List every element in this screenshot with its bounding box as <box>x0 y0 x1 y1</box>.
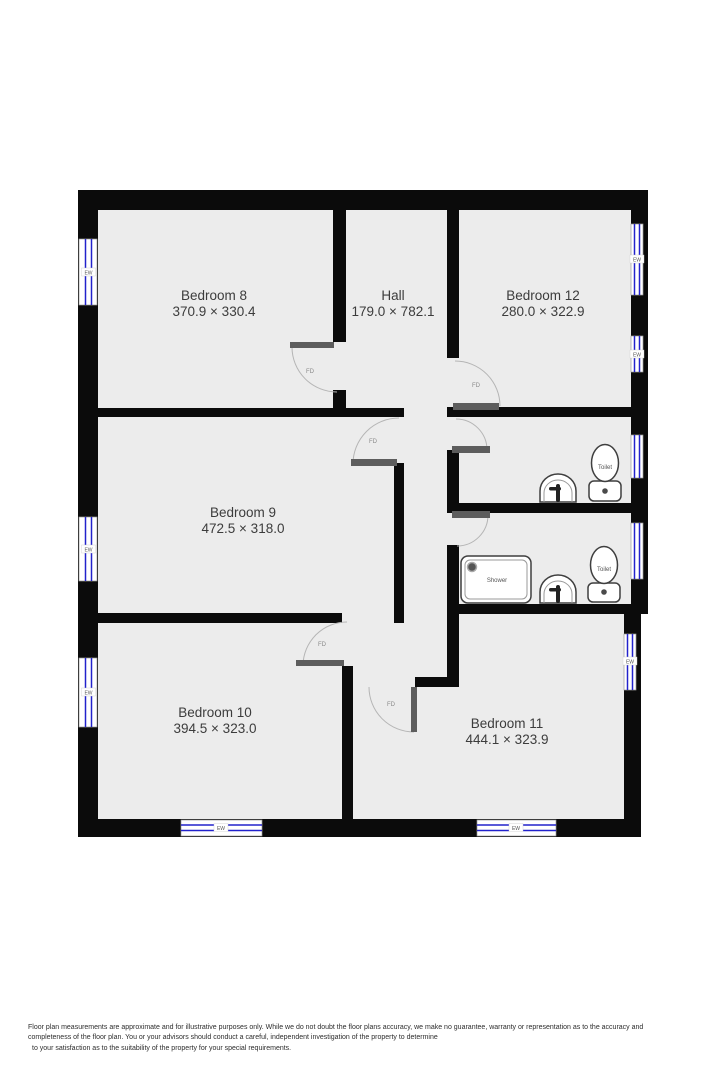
sink-wc1 <box>540 474 576 502</box>
window-bedroom11-bottom: EW <box>477 820 556 836</box>
toilet-flush-button <box>601 589 607 595</box>
door-leaf <box>452 446 490 453</box>
wall-wc2-left <box>447 545 459 614</box>
ew-text: EW <box>84 548 92 554</box>
disclaimer: Floor plan measurements are approximate … <box>28 1023 688 1054</box>
room-dimensions: 472.5 × 318.0 <box>202 521 285 536</box>
shower-drain <box>468 563 477 572</box>
sink-tap-handle <box>549 487 561 491</box>
room-dimensions: 179.0 × 782.1 <box>352 304 435 319</box>
door-leaf <box>411 687 417 732</box>
wall-hall-bedroom12-divider <box>447 210 459 358</box>
ew-text: EW <box>84 691 92 697</box>
wall-bedroom9-top <box>96 408 404 417</box>
room-label-bedroom11: Bedroom 11 444.1 × 323.9 <box>466 716 549 747</box>
window-bedroom11-right: EW <box>623 634 637 690</box>
toilet-flush-button <box>602 488 608 494</box>
ew-text: EW <box>84 271 92 277</box>
disclaimer-line-2: completeness of the floor plan. You or y… <box>28 1033 688 1043</box>
door-leaf <box>351 459 397 466</box>
toilet-wc2: Toilet <box>588 547 620 603</box>
ew-text: EW <box>512 826 520 832</box>
wall-shower-room-bottom <box>447 604 648 614</box>
sink-wc2 <box>540 575 576 603</box>
room-name: Bedroom 11 <box>471 716 544 731</box>
floor-plan-page: EW EW EW EW EW <box>0 0 720 1080</box>
wall-bedroom9-bottom <box>96 613 342 623</box>
window-frame <box>631 523 643 579</box>
door-leaf <box>453 403 499 410</box>
window-wc2-right <box>631 523 643 579</box>
floor-plan-drawing: EW EW EW EW EW <box>0 0 720 1080</box>
fire-door-text: FD <box>318 642 327 648</box>
sink-tap <box>556 484 560 502</box>
sink-tap <box>556 585 560 603</box>
door-leaf <box>290 342 334 348</box>
toilet-bowl <box>592 445 619 482</box>
room-name: Bedroom 9 <box>210 505 276 520</box>
room-dimensions: 394.5 × 323.0 <box>174 721 257 736</box>
wall-bedroom10-bedroom11-divider <box>342 666 353 819</box>
window-bedroom9-left: EW <box>79 517 97 581</box>
room-label-bedroom10: Bedroom 10 394.5 × 323.0 <box>174 705 257 736</box>
ew-text: EW <box>633 258 641 264</box>
disclaimer-line-1: Floor plan measurements are approximate … <box>28 1023 688 1033</box>
shower-text: Shower <box>487 578 507 584</box>
room-name: Bedroom 12 <box>506 288 580 303</box>
fire-door-text: FD <box>306 369 315 375</box>
window-bedroom10-left: EW <box>79 658 97 727</box>
room-label-bedroom8: Bedroom 8 370.9 × 330.4 <box>173 288 256 319</box>
wall-outer-top <box>78 190 648 210</box>
room-dimensions: 370.9 × 330.4 <box>173 304 256 319</box>
room-dimensions: 280.0 × 322.9 <box>502 304 585 319</box>
toilet-bowl <box>591 547 618 584</box>
window-bedroom12-right-2: EW <box>630 336 644 372</box>
room-name: Bedroom 8 <box>181 288 247 303</box>
room-label-bedroom12: Bedroom 12 280.0 × 322.9 <box>502 288 585 319</box>
shower: Shower <box>461 556 531 603</box>
fire-door-text: FD <box>472 383 481 389</box>
room-name: Hall <box>381 288 404 303</box>
toilet-text: Toilet <box>597 567 611 573</box>
ew-text: EW <box>626 660 634 666</box>
ew-text: EW <box>633 353 641 359</box>
toilet-wc1: Toilet <box>589 445 621 502</box>
toilet-text: Toilet <box>598 465 612 471</box>
disclaimer-line-3: to your satisfaction as to the suitabili… <box>28 1044 688 1054</box>
wall-bedroom9-right <box>394 463 404 623</box>
door-leaf <box>296 660 344 666</box>
fire-door-text: FD <box>387 702 396 708</box>
wall-hall-bedroom11-divider <box>447 614 459 687</box>
wall-outer-bottom <box>78 819 641 837</box>
window-bedroom12-right-1: EW <box>630 224 644 295</box>
sink-tap-handle <box>549 588 561 592</box>
room-label-bedroom9: Bedroom 9 472.5 × 318.0 <box>202 505 285 536</box>
fire-door-text: FD <box>369 439 378 445</box>
window-bedroom8-left: EW <box>79 239 97 305</box>
window-wc1-right <box>631 435 643 478</box>
window-frame <box>631 435 643 478</box>
room-name: Bedroom 10 <box>178 705 252 720</box>
door-leaf <box>452 511 490 518</box>
ew-text: EW <box>217 826 225 832</box>
window-bedroom10-bottom: EW <box>181 820 262 836</box>
room-dimensions: 444.1 × 323.9 <box>466 732 549 747</box>
wall-bedroom8-hall-upper <box>333 210 346 342</box>
